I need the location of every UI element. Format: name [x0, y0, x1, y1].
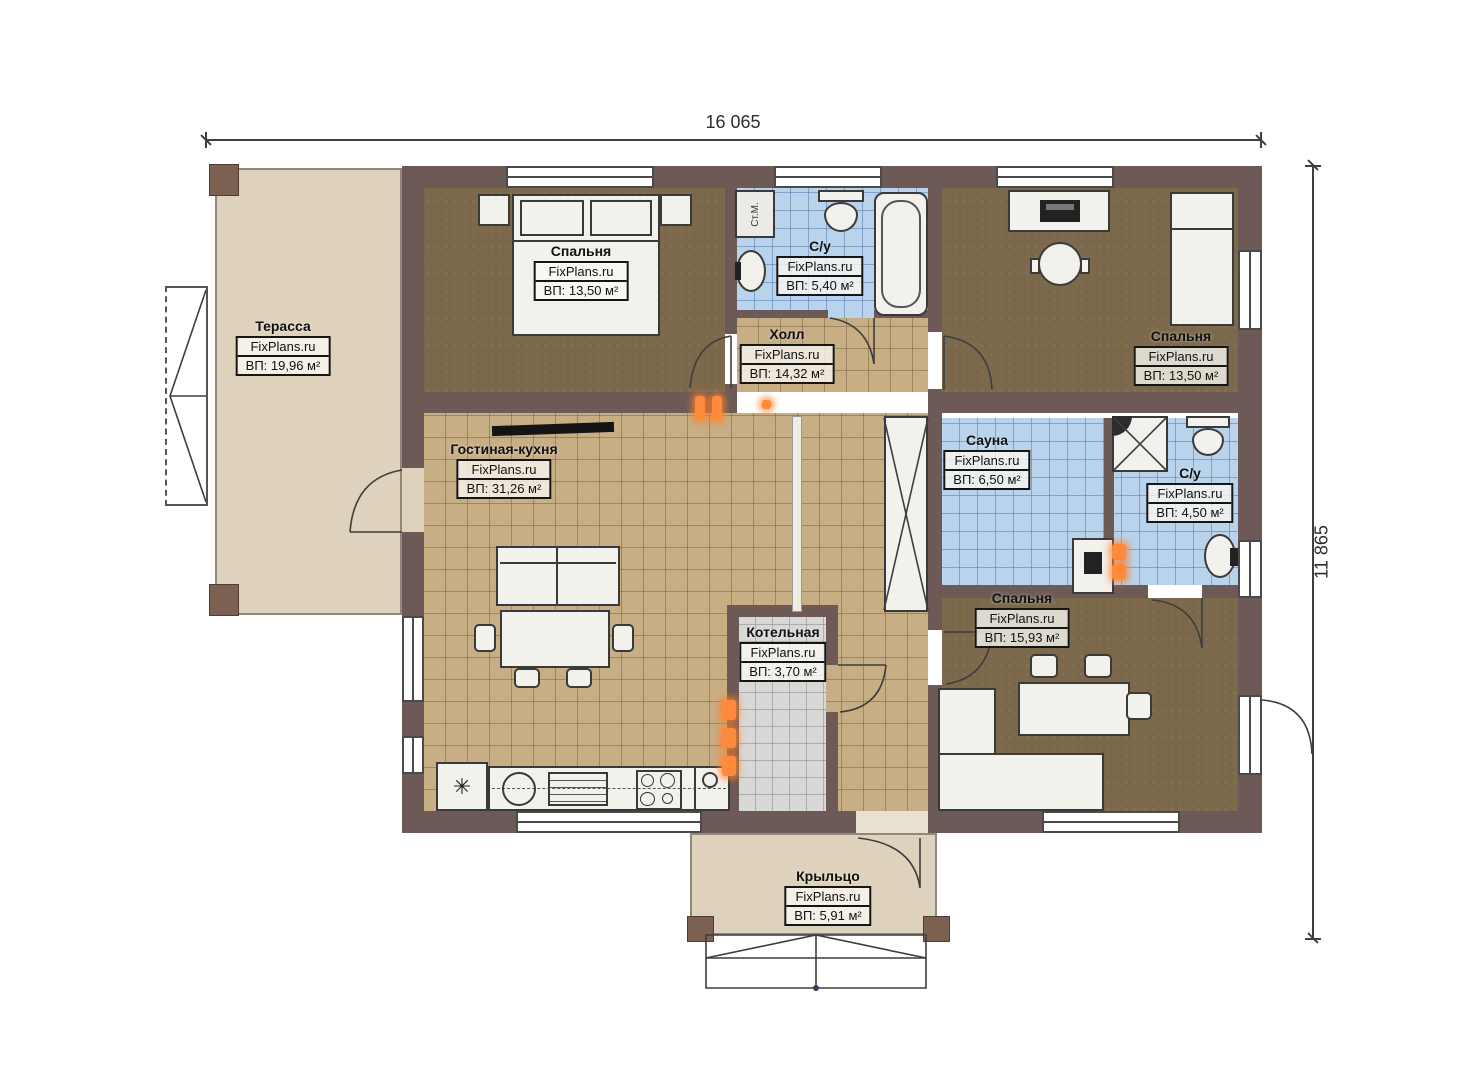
brand-watermark: FixPlans.ru: [1136, 348, 1227, 367]
wall-segment: [737, 310, 828, 318]
chair: [474, 624, 496, 652]
room-name: Спальня: [534, 243, 629, 259]
chair-arm: [1080, 258, 1090, 274]
room-label-boiler: Котельная FixPlans.ruВП: 3,70 м²: [739, 624, 826, 682]
window: [506, 166, 654, 188]
fridge-symbol: ✳: [453, 774, 471, 800]
room-area: ВП: 31,26 м²: [459, 480, 550, 497]
burner: [641, 774, 654, 787]
porch-post: [687, 916, 714, 942]
boiler-wall: [727, 605, 838, 617]
toilet-tank: [1186, 416, 1230, 428]
room-area: ВП: 13,50 м²: [1136, 367, 1227, 384]
wall-segment: [928, 389, 942, 630]
chair: [514, 668, 540, 688]
brand-watermark: FixPlans.ru: [741, 644, 824, 663]
wall-middle: [424, 392, 737, 413]
brand-watermark: FixPlans.ru: [459, 461, 550, 480]
window: [1238, 540, 1262, 598]
room-label-bathroom-1: С/у FixPlans.ruВП: 5,40 м²: [776, 238, 863, 296]
room-label-bedroom-3: Спальня FixPlans.ruВП: 15,93 м²: [975, 590, 1070, 648]
window: [516, 811, 702, 833]
room-label-bedroom-1: Спальня FixPlans.ruВП: 13,50 м²: [534, 243, 629, 301]
floor-plan: Ст.М. ✳: [0, 0, 1473, 1080]
room-label-porch: Крыльцо FixPlans.ruВП: 5,91 м²: [784, 868, 871, 926]
laptop-screen: [1046, 204, 1074, 210]
sofa-line: [556, 548, 558, 604]
burner: [660, 773, 675, 788]
chair: [1084, 654, 1112, 678]
brand-watermark: FixPlans.ru: [945, 452, 1028, 471]
brand-watermark: FixPlans.ru: [1148, 485, 1231, 504]
chair: [612, 624, 634, 652]
brand-watermark: FixPlans.ru: [742, 346, 833, 365]
terrace-deck: [215, 168, 402, 615]
wall-segment: [1202, 585, 1238, 598]
chair: [566, 668, 592, 688]
room-name: Спальня: [975, 590, 1070, 606]
desk: [1018, 682, 1130, 736]
single-bed: [1170, 192, 1234, 326]
window: [774, 166, 882, 188]
brand-watermark: FixPlans.ru: [977, 610, 1068, 629]
sink-base: [1230, 548, 1238, 566]
room-area: ВП: 5,91 м²: [786, 907, 869, 924]
porch-steps: [706, 935, 926, 991]
corner-sofa: [938, 753, 1104, 811]
sauna-stove-core: [1084, 552, 1102, 574]
radiator: [722, 700, 736, 720]
pillow: [520, 200, 584, 236]
sofa: [496, 546, 620, 606]
radiator-dot: [762, 400, 771, 409]
chair: [1126, 692, 1152, 720]
room-area: ВП: 15,93 м²: [977, 629, 1068, 646]
brand-watermark: FixPlans.ru: [238, 338, 329, 357]
room-name: Спальня: [1134, 328, 1229, 344]
burner: [662, 793, 673, 804]
room-name: Сауна: [943, 432, 1030, 448]
radiator: [1112, 564, 1126, 580]
boiler-wall: [826, 712, 838, 811]
nightstand: [478, 194, 510, 226]
wall-middle: [928, 392, 1240, 413]
fridge: ✳: [436, 762, 488, 811]
window: [1042, 811, 1180, 833]
pillow: [590, 200, 652, 236]
radiator: [1112, 544, 1126, 560]
brand-watermark: FixPlans.ru: [786, 888, 869, 907]
radiator: [722, 756, 736, 776]
washing-machine: Ст.М.: [735, 190, 775, 238]
window: [996, 166, 1114, 188]
room-area: ВП: 3,70 м²: [741, 663, 824, 680]
room-label-living-kitchen: Гостиная-кухня FixPlans.ruВП: 31,26 м²: [450, 441, 557, 499]
room-label-bathroom-2: С/у FixPlans.ruВП: 4,50 м²: [1146, 465, 1233, 523]
office-chair: [1038, 242, 1082, 286]
room-name: Гостиная-кухня: [450, 441, 557, 457]
terrace-steps: [165, 286, 208, 506]
terrace-door-opening: [402, 468, 424, 532]
room-label-hall: Холл FixPlans.ruВП: 14,32 м²: [740, 326, 835, 384]
room-name: Терасса: [236, 318, 331, 334]
kitchen-drawers: [548, 772, 608, 806]
dimension-line-top: [205, 139, 1262, 141]
room-area: ВП: 13,50 м²: [536, 282, 627, 299]
boiler-wall: [826, 617, 838, 665]
dining-table: [500, 610, 610, 668]
terrace-post: [209, 164, 239, 196]
wall-segment: [725, 384, 737, 392]
porch-post: [923, 916, 950, 942]
radiator: [712, 396, 722, 420]
brand-watermark: FixPlans.ru: [536, 263, 627, 282]
room-name: Котельная: [739, 624, 826, 640]
sink-base: [735, 262, 741, 280]
room-area: ВП: 14,32 м²: [742, 365, 833, 382]
room-label-sauna: Сауна FixPlans.ruВП: 6,50 м²: [943, 432, 1030, 490]
dimension-width-label: 16 065: [705, 112, 760, 133]
room-name: С/у: [776, 238, 863, 254]
toilet-tank: [818, 190, 864, 202]
bed-line: [512, 240, 660, 242]
front-door-opening: [856, 811, 928, 833]
room-name: С/у: [1146, 465, 1233, 481]
window: [1238, 695, 1262, 775]
room-area: ВП: 19,96 м²: [238, 357, 329, 374]
room-area: ВП: 5,40 м²: [778, 277, 861, 294]
room-label-terrace: Терасса FixPlans.ruВП: 19,96 м²: [236, 318, 331, 376]
burner: [640, 792, 655, 806]
brand-watermark: FixPlans.ru: [778, 258, 861, 277]
radiator: [722, 728, 736, 748]
washing-machine-label: Ст.М.: [750, 202, 761, 227]
wall-segment: [928, 188, 942, 332]
sofa-line: [500, 562, 616, 564]
bathtub-basin: [881, 200, 921, 308]
bed-line: [1170, 228, 1234, 230]
window: [1238, 250, 1262, 330]
chair: [1030, 654, 1058, 678]
chair-arm: [1030, 258, 1040, 274]
room-name: Крыльцо: [784, 868, 871, 884]
room-name: Холл: [740, 326, 835, 342]
dimension-height-label: 11 865: [1312, 525, 1333, 579]
wardrobe: [884, 416, 928, 612]
window: [402, 736, 424, 774]
window-swing-arc: [1262, 700, 1312, 754]
room-area: ВП: 6,50 м²: [945, 471, 1028, 488]
window: [402, 616, 424, 702]
cabinet-sink-icon: [702, 772, 718, 788]
nightstand: [660, 194, 692, 226]
kitchen-sink-icon: [502, 772, 536, 806]
room-area: ВП: 4,50 м²: [1148, 504, 1231, 521]
terrace-post: [209, 584, 239, 616]
cased-opening: [792, 416, 802, 612]
radiator: [695, 396, 705, 420]
room-label-bedroom-2: Спальня FixPlans.ruВП: 13,50 м²: [1134, 328, 1229, 386]
